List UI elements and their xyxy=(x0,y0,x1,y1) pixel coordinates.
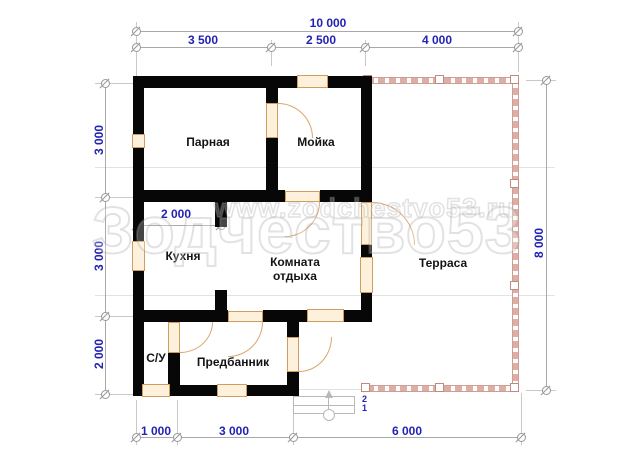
wall-predbannik-right-upper xyxy=(287,322,299,337)
room-label-su: С/У xyxy=(146,351,165,365)
room-label-predbannik: Предбанник xyxy=(197,355,269,369)
dimension-node xyxy=(517,433,526,442)
wall-mid-horizontal-left xyxy=(133,190,285,202)
dimension-line-kitchen xyxy=(137,225,221,226)
extension-line xyxy=(526,390,556,391)
wall-su-right xyxy=(168,353,180,385)
wall-left xyxy=(133,76,144,396)
door-swing-arc xyxy=(299,337,332,372)
dim-label-left-1: 3 000 xyxy=(92,125,106,155)
wall-mid-horizontal-right xyxy=(320,190,372,202)
stairs-step-line xyxy=(293,405,355,406)
window-moyka-top xyxy=(297,75,328,88)
dim-label-left-3: 2 000 xyxy=(92,339,106,369)
dim-label-top-3: 4 000 xyxy=(422,33,452,47)
wall-right-upper xyxy=(361,76,372,202)
wall-kitchen-stub-upper xyxy=(215,202,227,227)
window-kitchen-left xyxy=(132,241,145,271)
door-leaf-predbannik-exit xyxy=(287,337,299,372)
door-swing-arc xyxy=(278,103,313,138)
window-rest-south xyxy=(307,309,344,322)
door-swing-arc xyxy=(372,202,415,245)
terrace-post xyxy=(510,281,519,290)
wall-parnaya-moyka-upper xyxy=(266,88,278,103)
wall-parnaya-moyka-lower xyxy=(266,138,278,190)
dim-label-bottom-1: 1 000 xyxy=(141,424,171,438)
dimension-node xyxy=(132,433,141,442)
dimension-node xyxy=(101,193,110,202)
terrace-post xyxy=(510,383,519,392)
dimension-line-top-segments xyxy=(136,47,518,48)
room-label-terrasa: Терраса xyxy=(419,256,467,270)
room-label-komnata-line2: отдыха xyxy=(270,269,320,283)
dimension-node xyxy=(361,43,370,52)
window-predbannik-bottom xyxy=(217,384,247,397)
room-label-moyka: Мойка xyxy=(297,135,334,149)
stairs-arrow-up-icon xyxy=(325,390,333,398)
wall-predbannik-right-lower xyxy=(287,372,299,396)
dimension-node xyxy=(101,312,110,321)
dim-label-top-total: 10 000 xyxy=(310,16,347,30)
dim-label-top-2: 2 500 xyxy=(306,33,336,47)
dim-label-right-total: 8 000 xyxy=(532,228,546,258)
wall-kitchen-stub-lower xyxy=(215,290,227,310)
window-su-bottom xyxy=(142,384,170,397)
dimension-node xyxy=(101,390,110,399)
door-leaf-rest-predbannik xyxy=(228,311,263,322)
stairs-step-1-label: 1 xyxy=(362,403,367,413)
door-leaf-terrace xyxy=(361,202,372,245)
room-label-komnata-line1: Комната xyxy=(270,255,320,269)
door-swing-arc xyxy=(228,322,263,357)
terrace-post xyxy=(435,383,444,392)
extension-line xyxy=(526,80,556,81)
dimension-node xyxy=(101,79,110,88)
terrace-post xyxy=(361,383,370,392)
dim-label-top-1: 3 500 xyxy=(188,33,218,47)
door-swing-arc xyxy=(180,322,213,353)
terrace-edge-right xyxy=(512,77,519,391)
dimension-node xyxy=(132,43,141,52)
dimension-node xyxy=(542,386,551,395)
door-leaf-parnaya-moyka xyxy=(266,103,278,138)
dimension-node xyxy=(173,433,182,442)
room-label-parnaya: Парная xyxy=(186,135,230,149)
room-label-komnata: Комната отдыха xyxy=(270,255,320,283)
door-leaf-moyka-rest xyxy=(285,191,320,202)
dimension-node xyxy=(514,43,523,52)
dimension-node xyxy=(267,43,276,52)
stairs-start-circle xyxy=(323,409,335,421)
dim-label-bottom-2: 3 000 xyxy=(219,424,249,438)
terrace-post xyxy=(435,75,444,84)
dimension-line-bottom xyxy=(136,437,521,438)
dim-label-left-2: 3 000 xyxy=(92,241,106,271)
dim-label-bottom-3: 6 000 xyxy=(392,424,422,438)
dimension-node xyxy=(542,76,551,85)
door-swing-arc xyxy=(285,202,320,237)
dimension-line-top-total xyxy=(136,31,518,32)
window-rest-right xyxy=(360,257,373,293)
door-leaf-su xyxy=(168,322,180,353)
room-label-kuhnya: Кухня xyxy=(165,249,200,263)
floor-plan-canvas: 10 000 3 500 2 500 4 000 3 000 3 000 2 0… xyxy=(0,0,640,470)
dimension-node xyxy=(132,27,141,36)
dimension-line-right xyxy=(546,80,547,390)
terrace-post xyxy=(510,179,519,188)
window-parnaya-left xyxy=(132,134,145,148)
wall-top xyxy=(133,76,372,88)
dimension-node xyxy=(289,433,298,442)
terrace-post xyxy=(510,75,519,84)
guide-line xyxy=(95,167,555,168)
dimension-node xyxy=(514,27,523,36)
dim-label-kitchen: 2 000 xyxy=(161,207,191,221)
guide-line xyxy=(95,295,555,296)
wall-lower-horizontal-left xyxy=(133,310,228,322)
